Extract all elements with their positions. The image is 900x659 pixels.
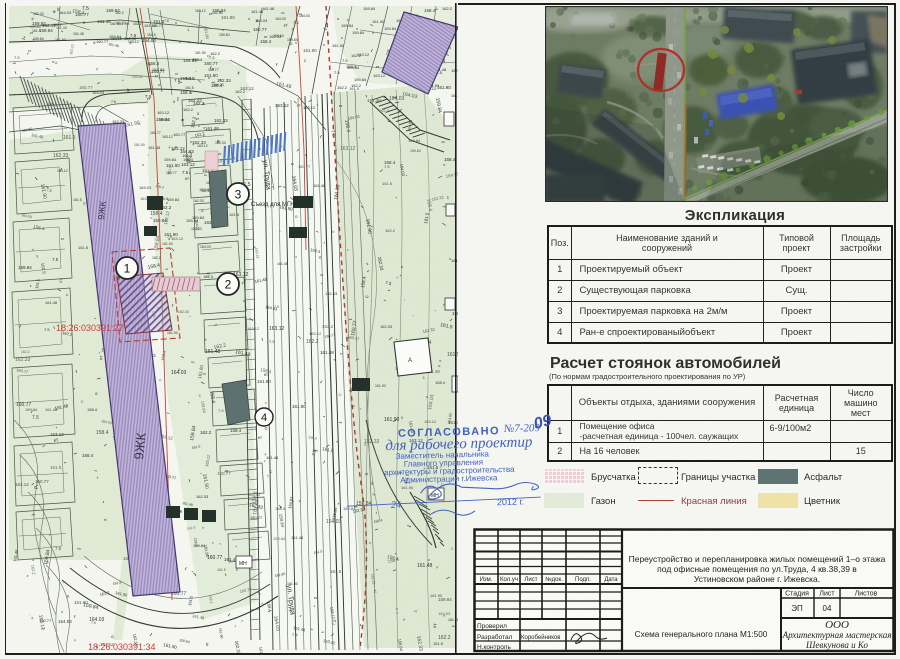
svg-text:Администрации г.Ижевска: Администрации г.Ижевска: [400, 473, 498, 485]
svg-text:Схема генерального плана М1:50: Схема генерального плана М1:500: [635, 630, 768, 639]
svg-text:Кол.уч: Кол.уч: [500, 577, 518, 583]
svg-text:Устиновском районе г. Ижевска.: Устиновском районе г. Ижевска.: [694, 574, 820, 584]
svg-text:Лист: Лист: [524, 577, 537, 583]
svg-text:Н.контроль: Н.контроль: [477, 644, 511, 651]
svg-text:Лист: Лист: [819, 591, 835, 598]
svg-text:Изм.: Изм.: [480, 577, 493, 583]
svg-text:Переустройство и перепланировк: Переустройство и перепланировка жилых по…: [629, 554, 886, 564]
svg-text:под офисные помещения по ул.Т: под офисные помещения по ул.Труда, 4 кв.…: [657, 564, 857, 574]
svg-text:24: 24: [391, 500, 401, 511]
svg-text:Стадия: Стадия: [785, 591, 809, 598]
svg-text:Подп.: Подп.: [575, 577, 591, 583]
svg-text:Шевкунова и Ко: Шевкунова и Ко: [805, 640, 868, 650]
svg-text:2012 г.: 2012 г.: [497, 497, 524, 508]
svg-text:Коробейников: Коробейников: [521, 634, 560, 641]
svg-text:ЭП: ЭП: [791, 604, 803, 613]
svg-text:Проверил: Проверил: [477, 623, 507, 630]
svg-text:Разработал: Разработал: [477, 633, 513, 641]
svg-text:Листов: Листов: [855, 591, 878, 598]
svg-text:Дата: Дата: [604, 577, 618, 583]
svg-text:Архитектурная мастерская: Архитектурная мастерская: [782, 630, 892, 640]
svg-text:№док.: №док.: [545, 576, 563, 583]
svg-text:04: 04: [823, 604, 832, 613]
